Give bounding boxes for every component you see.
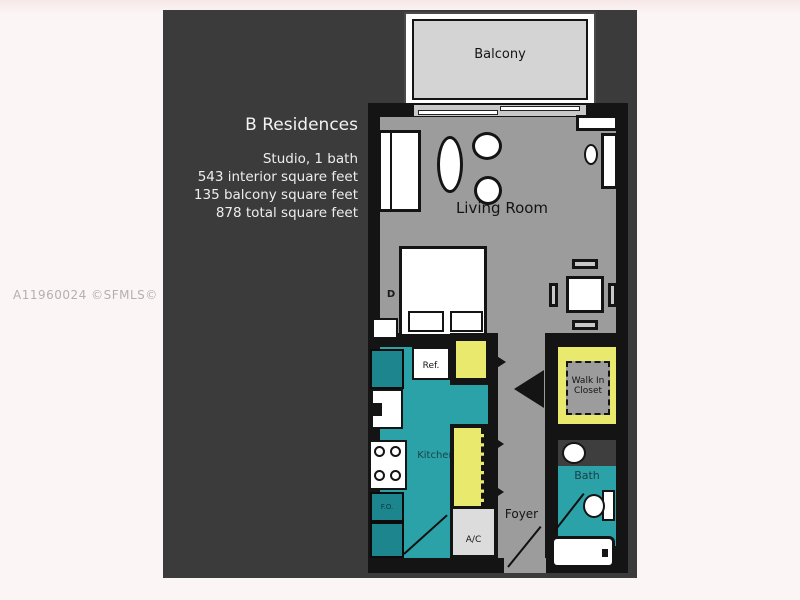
detail-line: 135 balcony square feet	[194, 187, 358, 203]
hall-closet-tall	[454, 428, 484, 508]
pillow	[450, 311, 483, 332]
sofa	[378, 130, 421, 212]
balcony-label: Balcony	[412, 48, 588, 63]
burner-icon	[374, 446, 385, 457]
detail-line: 543 interior square feet	[198, 169, 358, 185]
faucet-icon	[373, 403, 382, 416]
bath-label: Bath	[558, 470, 616, 483]
tub-faucet-icon	[602, 549, 608, 557]
desk-top	[576, 115, 618, 131]
sliding-door-panel	[418, 110, 498, 115]
kitchen-sink	[371, 389, 403, 429]
walkin-closet-label-box: Walk In Closet	[566, 361, 610, 415]
kitchen-cabinet	[370, 349, 404, 389]
unit-details: Studio, 1 bath 543 interior square feet …	[160, 150, 358, 222]
living-room-label: Living Room	[432, 200, 572, 217]
door-arrow-icon	[514, 370, 544, 408]
detail-line: Studio, 1 bath	[263, 151, 358, 167]
desk-side	[601, 133, 618, 189]
bathtub	[551, 536, 615, 568]
burner-icon	[374, 470, 385, 481]
dining-chair	[549, 283, 558, 307]
bathroom-sink	[562, 442, 586, 464]
toilet-bowl	[583, 494, 605, 518]
burner-icon	[390, 446, 401, 457]
bed-marker-label: D	[385, 289, 397, 301]
coffee-table	[437, 136, 463, 193]
dining-table	[566, 276, 604, 313]
kitchen-cabinet: F.O.	[370, 492, 404, 522]
kitchen-cabinet	[370, 522, 404, 558]
dining-chair	[572, 259, 598, 269]
lounge-chair	[472, 132, 502, 160]
door-arrow-icon	[486, 480, 504, 504]
dining-chair	[572, 320, 598, 330]
foyer-label: Foyer	[498, 508, 545, 522]
nightstand	[372, 318, 398, 339]
stove	[369, 440, 407, 490]
dining-chair	[608, 283, 617, 307]
desk-chair	[584, 144, 598, 165]
detail-line: 878 total square feet	[216, 205, 358, 221]
hall-closet	[456, 341, 486, 378]
door-arrow-icon	[486, 432, 504, 456]
listing-photo: A11960024 ©SFMLS© 2/26/2019 B Residences…	[0, 0, 800, 600]
building-title: B Residences	[175, 116, 358, 136]
sliding-door-panel	[500, 106, 580, 111]
sofa-armrest-line	[390, 133, 392, 209]
burner-icon	[390, 470, 401, 481]
ac-closet: A/C	[450, 506, 497, 558]
pillow	[408, 311, 444, 332]
refrigerator: Ref.	[412, 347, 450, 380]
door-arrow-icon	[486, 349, 506, 375]
